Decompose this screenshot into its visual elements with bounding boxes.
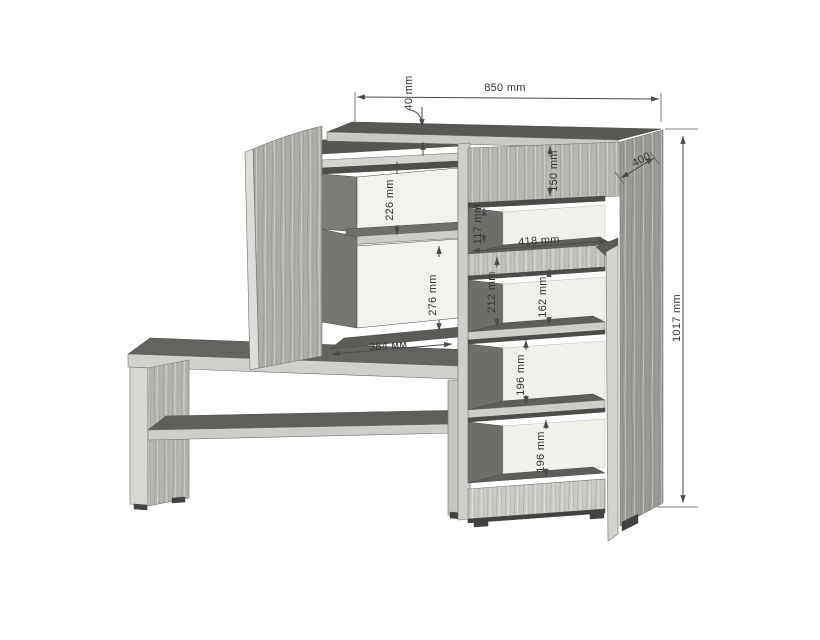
cabinet-left-inner-side [322,174,357,232]
dim-right-upper-niche: 117 mm [472,204,484,245]
niche4-back-panel [503,419,605,475]
shoe-unit [458,130,663,541]
dim-top-niche: 150 mm [548,146,560,196]
cabinet-left-inner-side-lower [322,229,357,328]
right-open-door [606,245,618,541]
dim-lower-niche-2-label: 196 mm [535,431,547,473]
dim-left-upper-niche-label: 226 mm [384,179,396,221]
unit-foot-icon [590,510,604,519]
niche3-side [468,344,503,410]
bench-foot-icon [172,497,185,503]
dim-flap-niche-open: 162 mm [537,269,549,325]
unit-foot-icon [474,518,488,527]
dim-flap-niche-open-label: 162 mm [537,276,549,318]
dim-left-lower-niche-label: 276 mm [427,274,439,316]
dim-top-thickness-label: 40 mm [403,75,415,110]
dim-overall-height-label: 1017 mm [671,294,683,342]
dim-flap-niche-total-label: 212 mm [486,271,498,313]
cabinet-back-panel-upper [357,168,458,232]
drawing-canvas: 850 mm 40 mm 400 1017 mm 150 mm 226 mm [0,0,820,640]
dim-overall-width-label: 850 mm [484,82,526,94]
dim-top-niche-label: 150 mm [548,150,560,192]
dim-overall-width: 850 mm [355,82,661,129]
niche4-side [468,422,503,483]
cabinet-back-panel-lower [357,239,458,328]
bench [128,338,476,519]
dim-right-upper-niche-label: 117 mm [472,204,484,245]
bench-left-leg-edge [130,367,148,506]
bench-foot-icon [134,504,147,510]
dim-lower-niche-1-label: 196 mm [515,354,527,396]
left-open-door [245,126,322,370]
